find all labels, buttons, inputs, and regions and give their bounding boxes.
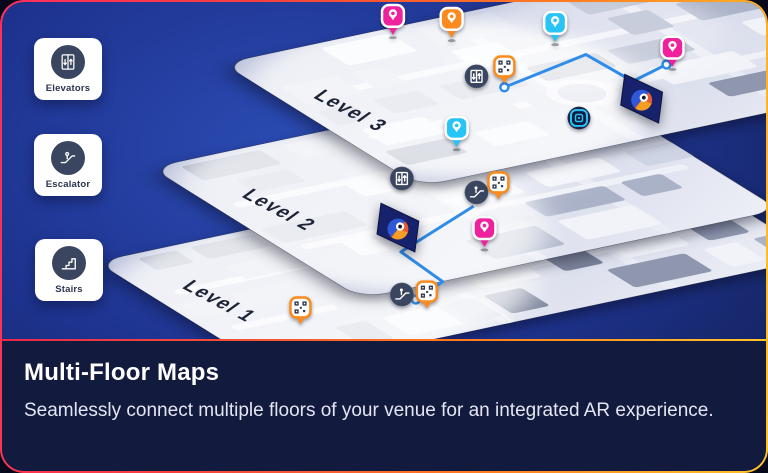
feature-card: Level 3Level 2Level 1 Elevators — [0, 0, 768, 473]
elevator-marker — [465, 64, 489, 88]
legend-card-stairs: Stairs — [35, 239, 103, 301]
escalator-icon — [51, 141, 85, 175]
route-waypoint — [663, 61, 671, 69]
elevator-marker — [390, 167, 414, 191]
stairs-icon — [52, 246, 86, 280]
legend-label-escalator: Escalator — [46, 179, 91, 190]
route-waypoint — [500, 83, 508, 91]
legend-card-elevators: Elevators — [34, 38, 102, 100]
legend-label-stairs: Stairs — [55, 284, 83, 295]
feature-description: Seamlessly connect multiple floors of yo… — [24, 396, 714, 425]
legend-card-escalator: Escalator — [34, 134, 102, 196]
feature-title: Multi-Floor Maps — [24, 359, 744, 387]
legend-label-elevators: Elevators — [46, 83, 91, 94]
beacon-marker — [568, 107, 591, 130]
escalator-marker — [390, 283, 414, 307]
feature-text-panel: Multi-Floor Maps Seamlessly connect mult… — [2, 339, 766, 471]
feature-card-inner: Level 3Level 2Level 1 Elevators — [2, 2, 766, 471]
elevator-icon — [51, 45, 85, 79]
escalator-marker — [465, 180, 489, 204]
